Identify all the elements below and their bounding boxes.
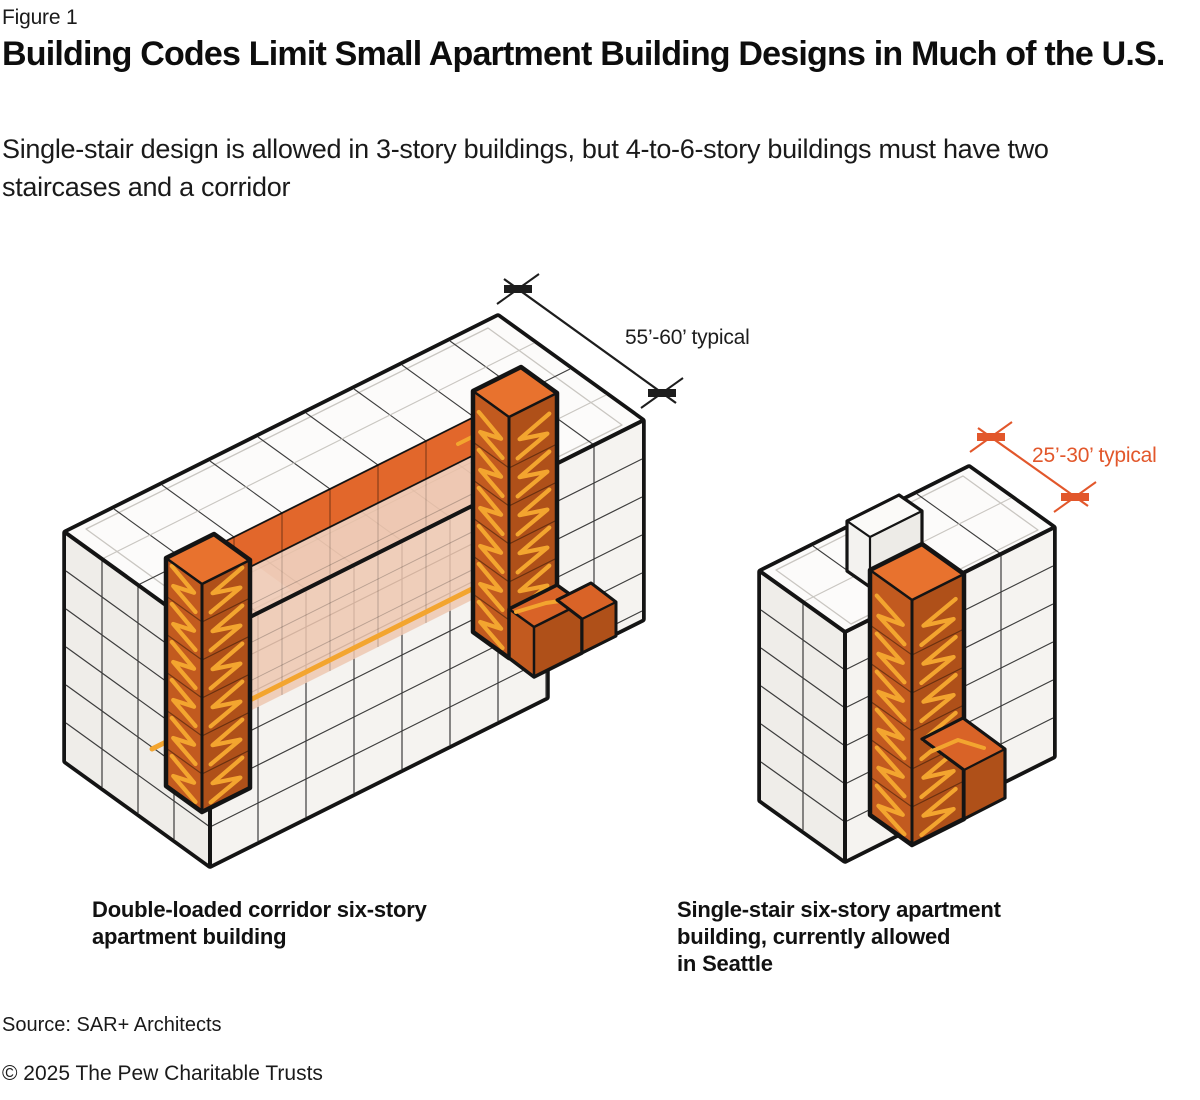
- right-caption-line: in Seattle: [677, 950, 1001, 977]
- figure-label: Figure 1: [2, 6, 77, 30]
- left-dimension-label: 55’-60’ typical: [625, 326, 750, 349]
- right-caption-line: building, currently allowed: [677, 923, 1001, 950]
- right-building-caption: Single-stair six-story apartment buildin…: [677, 896, 1001, 977]
- right-caption-line: Single-stair six-story apartment: [677, 896, 1001, 923]
- left-caption-line: apartment building: [92, 923, 427, 950]
- left-building-caption: Double-loaded corridor six-story apartme…: [92, 896, 427, 950]
- right-dimension-label: 25’-30’ typical: [1032, 444, 1157, 467]
- figure-page: Figure 1 Building Codes Limit Small Apar…: [0, 0, 1200, 1100]
- source-note: Source: SAR+ Architects: [2, 1014, 222, 1037]
- page-title: Building Codes Limit Small Apartment Bui…: [2, 34, 1187, 74]
- page-subtitle: Single-stair design is allowed in 3-stor…: [2, 130, 1147, 206]
- building-comparison-diagram: 55’-60’ typical 25’-30’ typical: [0, 240, 1200, 1000]
- left-caption-line: Double-loaded corridor six-story: [92, 896, 427, 923]
- left-building-illustration: [66, 274, 683, 865]
- copyright-note: © 2025 The Pew Charitable Trusts: [2, 1062, 323, 1086]
- right-building-illustration: [761, 422, 1096, 860]
